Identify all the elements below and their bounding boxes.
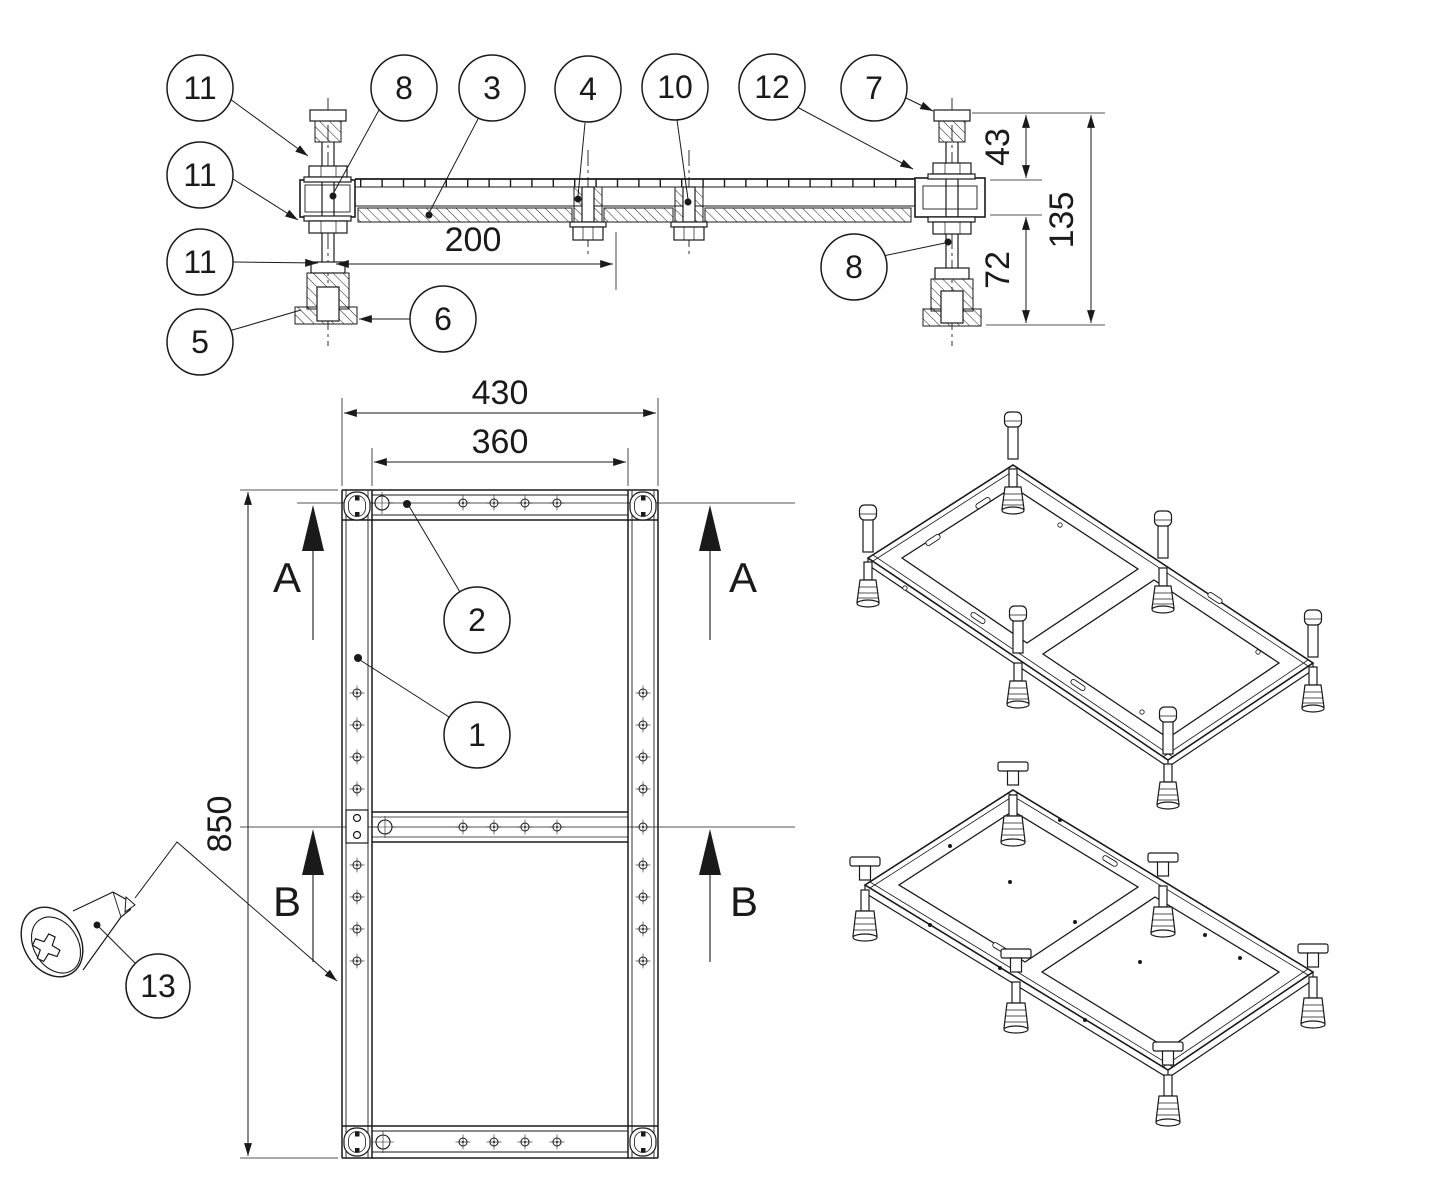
rail-holes <box>350 492 651 1153</box>
dim-430-label: 430 <box>472 374 529 412</box>
rail-end-block <box>300 180 355 217</box>
dim-43-label: 43 <box>979 128 1017 166</box>
svg-text:8: 8 <box>395 70 413 106</box>
stud-2 <box>671 187 707 240</box>
dim-72-label: 72 <box>979 251 1017 289</box>
svg-text:11: 11 <box>183 244 216 280</box>
dim-850-label: 850 <box>201 796 239 853</box>
svg-text:8: 8 <box>845 249 863 285</box>
screw-detail: 13 <box>9 842 337 1018</box>
balloon-11-first: 11 <box>167 55 233 121</box>
corner-bracket-tr <box>630 492 656 520</box>
dimension-850: 850 <box>201 490 338 1158</box>
dim-360-label: 360 <box>472 423 529 461</box>
balloon-3: 3 <box>459 55 525 121</box>
svg-text:11: 11 <box>183 70 216 106</box>
engineering-drawing-page: 200 43 72 135 11 11 11 5 8 3 4 10 12 7 8… <box>0 0 1448 1180</box>
dimension-360: 360 <box>372 423 628 486</box>
balloon-12: 12 <box>739 54 805 120</box>
corner-bracket-tl <box>344 492 370 520</box>
balloon-11-third: 11 <box>167 229 233 295</box>
balloon-8-top: 8 <box>371 55 437 121</box>
svg-text:7: 7 <box>865 70 883 106</box>
balloon-7: 7 <box>841 55 907 121</box>
svg-text:3: 3 <box>483 70 501 106</box>
rail-flange-hatch <box>358 208 572 222</box>
mid-rail-bracket <box>346 810 368 843</box>
section-letter-b-right: B <box>730 878 758 925</box>
section-view: 200 43 72 135 11 11 11 5 8 3 4 10 12 7 8… <box>167 54 1105 375</box>
balloon-8-lower: 8 <box>821 234 887 300</box>
dimension-72: 72 <box>979 215 1105 325</box>
balloon-1: 1 <box>444 702 510 768</box>
svg-text:13: 13 <box>140 968 176 1004</box>
svg-text:5: 5 <box>191 324 209 360</box>
drawing-canvas: 200 43 72 135 11 11 11 5 8 3 4 10 12 7 8… <box>0 0 1448 1180</box>
svg-text:11: 11 <box>183 157 216 193</box>
dimension-135: 135 <box>1043 115 1091 323</box>
iso-view-top <box>857 412 1324 809</box>
stud-1 <box>570 187 606 240</box>
adjustable-foot <box>1002 412 1024 514</box>
right-leg-assembly <box>923 110 981 326</box>
svg-text:10: 10 <box>657 69 693 105</box>
svg-text:6: 6 <box>434 301 452 337</box>
corner-bracket-bl <box>344 1128 370 1156</box>
balloon-5: 5 <box>167 309 233 375</box>
balloon-10: 10 <box>642 54 708 120</box>
svg-text:4: 4 <box>579 71 597 107</box>
svg-text:1: 1 <box>468 717 486 753</box>
left-leg-assembly <box>295 110 357 324</box>
plan-view: A A B B 430 360 850 2 1 <box>201 374 795 1158</box>
balloon-4: 4 <box>555 56 621 122</box>
section-letter-a-right: A <box>729 554 757 601</box>
balloon-13: 13 <box>126 954 190 1018</box>
svg-text:2: 2 <box>468 602 486 638</box>
dim-135-label: 135 <box>1043 192 1081 249</box>
corner-bracket-section <box>915 178 985 217</box>
dimension-43: 43 <box>972 113 1105 180</box>
dim-200-label: 200 <box>445 221 502 259</box>
svg-text:12: 12 <box>754 69 790 105</box>
corner-bracket-br <box>630 1128 656 1156</box>
balloon-6: 6 <box>410 286 476 352</box>
section-letter-a-left: A <box>273 554 301 601</box>
adjustable-foot <box>1298 944 1328 1028</box>
section-letter-b-left: B <box>273 878 301 925</box>
balloon-2: 2 <box>444 587 510 653</box>
balloon-11-second: 11 <box>167 142 233 208</box>
rail-profile <box>300 178 985 222</box>
iso-view-bottom <box>850 762 1328 1126</box>
